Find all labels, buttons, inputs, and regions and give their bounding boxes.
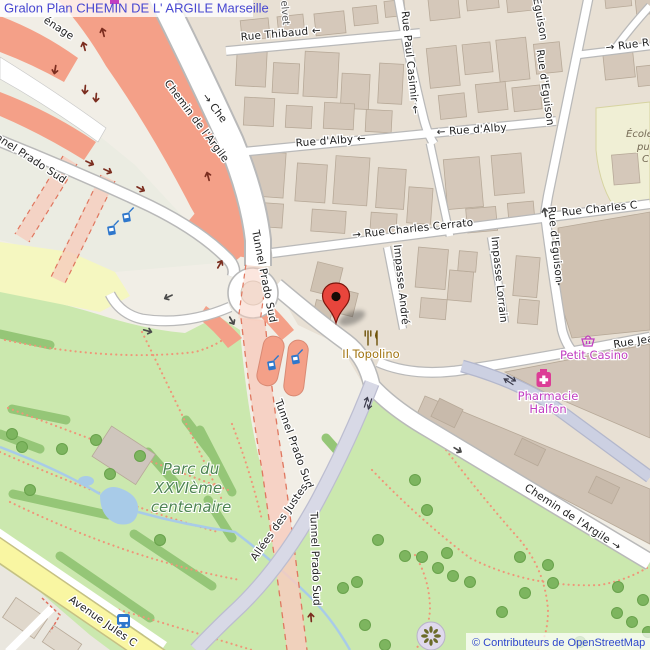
school-label-line2: pu [636, 142, 650, 153]
park-label-line1: Parc du [163, 460, 219, 478]
map-viewport[interactable]: énage Chemin de l'Argile → Che Rue Thiba… [0, 0, 650, 650]
osm-attribution[interactable]: © Contributeurs de OpenStreetMap [472, 637, 645, 649]
park-label-line3: centenaire [151, 498, 231, 516]
fountain-icon [417, 622, 445, 650]
park-label-line2: XXVIème [153, 479, 222, 497]
page-title: Gralon Plan CHEMIN DE L' ARGILE Marseill… [4, 1, 269, 16]
pharmacy-label-line2: Halfon [529, 402, 566, 416]
school-label-line3: C [642, 154, 649, 165]
restaurant-label: Il Topolino [342, 347, 399, 361]
attribution-bar: © Contributeurs de OpenStreetMap [466, 633, 650, 650]
map[interactable]: énage Chemin de l'Argile → Che Rue Thiba… [0, 0, 650, 650]
shop-label-velvet: elvet [278, 0, 291, 26]
school-label-line1: École é [626, 127, 650, 140]
convenience-label: Petit Casino [560, 348, 628, 362]
title-bar: Gralon Plan CHEMIN DE L' ARGILE Marseill… [0, 0, 269, 17]
pharmacy-label-line1: Pharmacie [518, 389, 579, 403]
